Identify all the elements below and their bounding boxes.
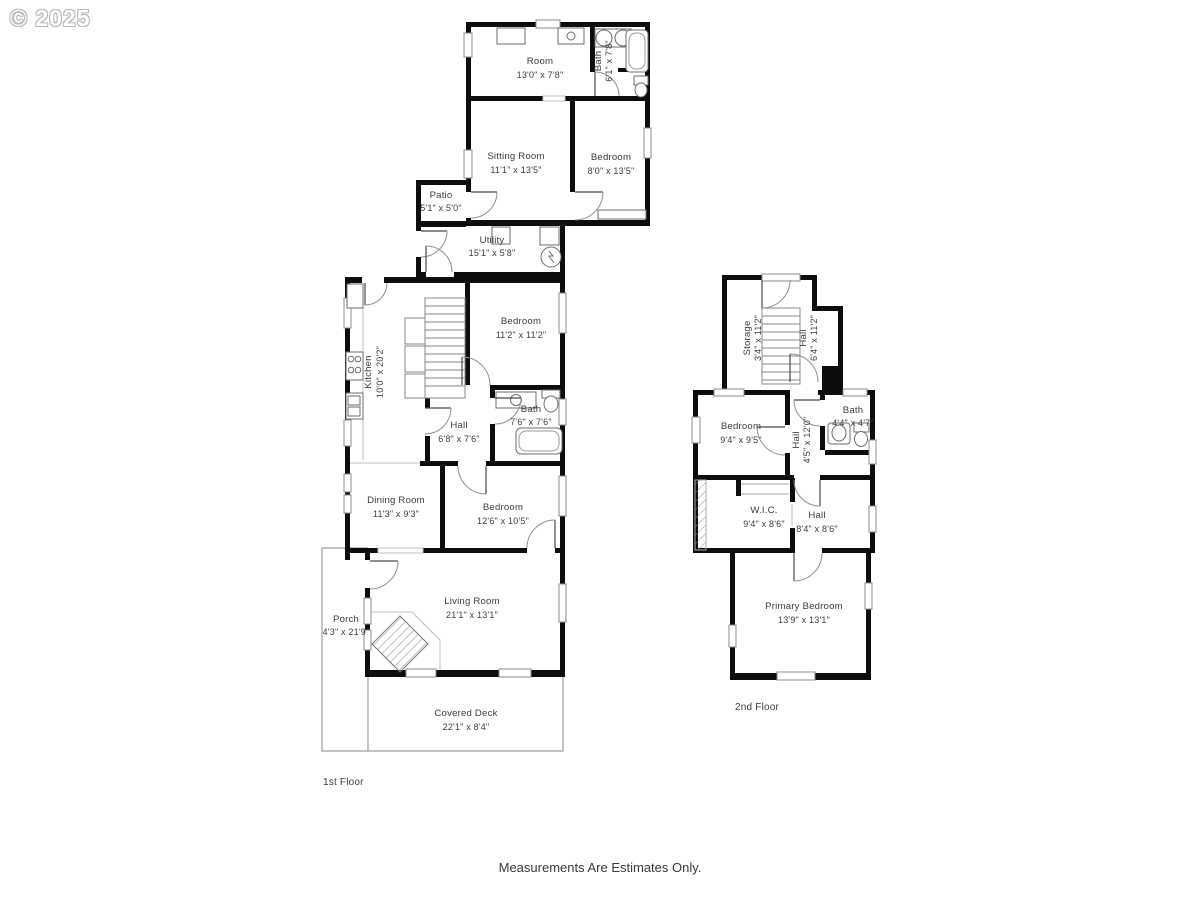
bath2-dims: 7'6" x 7'6" <box>510 417 552 427</box>
sitting-room-dims: 11'1" x 13'5" <box>490 165 541 175</box>
attic-hatch-strip <box>695 480 706 550</box>
bath2f-label: Bath <box>843 405 864 416</box>
covered-deck-label: Covered Deck <box>434 708 497 719</box>
bath-dims: 6'1" x 7'8" <box>604 40 614 82</box>
porch-deck-outline <box>322 548 563 751</box>
kitchen-dims: 10'0" x 20'2" <box>375 346 385 398</box>
kitchenette-counter <box>497 28 584 44</box>
hall-label: Hall <box>450 420 467 431</box>
bath2-label: Bath <box>521 404 542 415</box>
wic-label: W.I.C. <box>750 505 777 516</box>
second-floor-stairs <box>762 308 800 384</box>
upper-hall-dims: 6'4" x 11'2" <box>809 315 819 361</box>
upper-hall-label: Hall <box>798 329 809 346</box>
porch-label: Porch <box>333 614 359 625</box>
bedroom3-dims: 12'6" x 10'5" <box>477 516 529 526</box>
bedroom2f-dims: 9'4" x 9'5" <box>720 435 762 445</box>
bedroom2f-label: Bedroom <box>721 421 761 432</box>
sitting-room-label: Sitting Room <box>487 151 544 162</box>
living-room-label: Living Room <box>444 596 500 607</box>
room-label: Room <box>527 56 553 67</box>
dining-room-dims: 11'3" x 9'3" <box>373 509 419 519</box>
bath2f-dims: 4'4" x 4'7" <box>832 418 874 428</box>
room-dims: 13'0" x 7'8" <box>517 70 564 80</box>
toilet-icon <box>855 432 868 447</box>
kitchen-appliances <box>346 284 363 419</box>
covered-deck-dims: 22'1" x 8'4" <box>443 722 490 732</box>
storage-dims: 3'4" x 11'2" <box>753 315 763 361</box>
utility-label: Utility <box>480 235 505 246</box>
storage-label: Storage <box>742 320 753 355</box>
first-floor-plan: Room 13'0" x 7'8" Bath 6'1" x 7'8" Sitti… <box>322 20 651 788</box>
water-heater-icon <box>541 247 561 267</box>
measurements-note: Measurements Are Estimates Only. <box>0 860 1200 875</box>
utility-fixtures <box>492 227 561 267</box>
bedroom2-label: Bedroom <box>501 316 541 327</box>
mid-hall-dims: 4'5" x 12'0" <box>802 417 812 464</box>
dining-room-label: Dining Room <box>367 495 425 506</box>
bedroom3-label: Bedroom <box>483 502 523 513</box>
first-floor-walls <box>345 22 650 677</box>
patio-label: Patio <box>430 190 453 201</box>
bath-label: Bath <box>593 51 604 72</box>
utility-dims: 15'1" x 5'8" <box>469 248 516 258</box>
stove-icon <box>346 352 363 380</box>
bedroom2-dims: 11'2" x 11'2" <box>496 330 547 340</box>
primary-bedroom-label: Primary Bedroom <box>765 601 843 612</box>
bedroom-dims: 8'0" x 13'5" <box>588 166 635 176</box>
porch-dims: 4'3" x 21'9" <box>323 627 370 637</box>
second-floor-title: 2nd Floor <box>735 702 780 713</box>
fireplace-icon <box>372 616 428 672</box>
lower-hall-label: Hall <box>808 510 825 521</box>
floorplan-drawing: Room 13'0" x 7'8" Bath 6'1" x 7'8" Sitti… <box>0 0 1200 900</box>
kitchen-label: Kitchen <box>363 355 374 388</box>
living-room-dims: 21'1" x 13'1" <box>446 610 498 620</box>
first-floor-stairs <box>405 298 465 398</box>
wic-dims: 9'4" x 8'6" <box>743 519 785 529</box>
first-floor-title: 1st Floor <box>323 777 364 788</box>
hall-dims: 6'8" x 7'6" <box>438 434 480 444</box>
second-floor-plan: Storage 3'4" x 11'2" Hall 6'4" x 11'2" B… <box>692 274 876 713</box>
primary-bedroom-dims: 13'9" x 13'1" <box>778 615 830 625</box>
bedroom-label: Bedroom <box>591 152 631 163</box>
lower-hall-dims: 8'4" x 8'6" <box>796 524 838 534</box>
patio-dims: 5'1" x 5'0" <box>420 203 462 213</box>
closet-rod <box>741 484 789 494</box>
floorplan-page: © 2025 <box>0 0 1200 900</box>
first-floor-windows <box>344 20 651 677</box>
mid-hall-label: Hall <box>791 431 802 448</box>
